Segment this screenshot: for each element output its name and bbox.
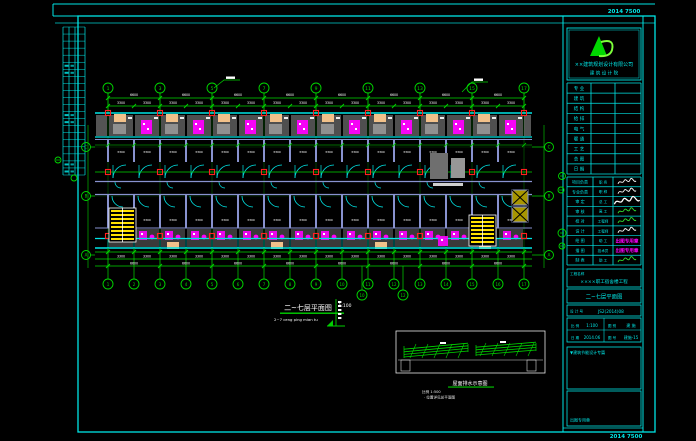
svg-text:绘 图: 绘 图: [575, 237, 584, 243]
svg-text:17: 17: [521, 86, 527, 92]
svg-text:13: 13: [417, 282, 423, 287]
svg-text:13: 13: [417, 86, 423, 92]
title-block: ××建筑规划设计有限公司 建 筑 设 计 院 专 业建 筑结 构给 排电 气暖 …: [558, 28, 641, 426]
svg-text:9: 9: [315, 282, 318, 287]
svg-text:3300: 3300: [455, 218, 463, 222]
svg-text:6600: 6600: [442, 262, 450, 266]
svg-text:2014.06: 2014.06: [584, 335, 601, 340]
svg-text:3300: 3300: [169, 101, 177, 105]
svg-text:3300: 3300: [377, 218, 385, 222]
svg-text:5: 5: [211, 86, 214, 92]
svg-text:16: 16: [495, 282, 501, 287]
svg-text:3300: 3300: [481, 150, 489, 154]
svg-text:3300: 3300: [299, 101, 307, 105]
svg-text:3300: 3300: [117, 150, 125, 154]
svg-text:总 工: 总 工: [599, 199, 608, 204]
sign-table: 专 业建 筑结 构给 排电 气暖 通工 艺总 图日 期: [567, 83, 641, 174]
svg-text:12: 12: [400, 293, 406, 298]
svg-text:3300: 3300: [325, 255, 333, 259]
svg-text:工程师: 工程师: [598, 219, 609, 224]
svg-text:A: A: [548, 253, 551, 258]
svg-text:3300: 3300: [221, 255, 229, 259]
svg-text:1: 1: [107, 282, 110, 287]
svg-text:总 图: 总 图: [574, 156, 585, 163]
svg-text:6600: 6600: [286, 262, 294, 266]
svg-text:6600: 6600: [442, 93, 450, 97]
svg-text:6: 6: [237, 282, 240, 287]
dimension-lines-bottom: 3300330033003300330033003300330033003300…: [95, 248, 532, 279]
svg-text:6600: 6600: [494, 262, 502, 266]
svg-text:3300: 3300: [351, 255, 359, 259]
svg-text:3300: 3300: [221, 150, 229, 154]
svg-text:B: B: [85, 194, 88, 199]
svg-text:3300: 3300: [429, 255, 437, 259]
elevator-shafts: [512, 190, 528, 222]
svg-text:3300: 3300: [117, 255, 125, 259]
floor-plan: 6600660066006600660066006600660033003300…: [82, 77, 554, 301]
svg-text:14: 14: [443, 282, 449, 287]
svg-text:3300: 3300: [299, 218, 307, 222]
svg-text:C: C: [548, 145, 551, 150]
svg-text:建 筑 设 计 院: 建 筑 设 计 院: [590, 70, 619, 77]
svg-text:7: 7: [263, 282, 266, 287]
svg-text:出图专用章: 出图专用章: [570, 417, 590, 423]
svg-text:6600: 6600: [338, 93, 346, 97]
svg-text:图 号: 图 号: [608, 335, 617, 340]
svg-text:6600: 6600: [234, 93, 242, 97]
svg-text:3: 3: [159, 86, 162, 92]
svg-text:3300: 3300: [507, 150, 515, 154]
svg-text:3300: 3300: [247, 150, 255, 154]
svg-text:电 气: 电 气: [574, 125, 585, 132]
svg-text:17: 17: [521, 282, 527, 287]
sheet-code-bottom: 2014 7500: [610, 434, 643, 440]
svg-text:工程名称: 工程名称: [570, 271, 585, 276]
svg-text:9: 9: [315, 86, 318, 92]
svg-text:3300: 3300: [195, 218, 203, 222]
svg-text:描 图: 描 图: [575, 247, 584, 253]
key-plan-sketch: [404, 341, 536, 358]
staff-table: 项目负责职 务专业负责职 称审 定总 工审 核高 工校 对工程师设 计工程师绘 …: [567, 177, 641, 265]
svg-text:10: 10: [339, 282, 345, 287]
svg-text:3300: 3300: [403, 101, 411, 105]
svg-text:3300: 3300: [377, 101, 385, 105]
svg-text:3300: 3300: [455, 150, 463, 154]
stamp-area-1: ▼建筑节能设计专篇: [567, 347, 641, 389]
svg-text:3300: 3300: [481, 255, 489, 259]
key-plan-inset: 屋面排水示意图 比例 1:500 · 位置详见总平面图: [396, 331, 545, 400]
svg-text:3300: 3300: [247, 255, 255, 259]
svg-text:3300: 3300: [403, 218, 411, 222]
svg-text:12: 12: [391, 282, 397, 287]
svg-text:专业负责: 专业负责: [572, 188, 588, 194]
svg-text:项目负责: 项目负责: [572, 178, 588, 184]
svg-text:3300: 3300: [143, 150, 151, 154]
svg-text:6600: 6600: [390, 93, 398, 97]
svg-text:建 筑: 建 筑: [574, 95, 585, 102]
svg-text:3300: 3300: [117, 101, 125, 105]
svg-text:给 排: 给 排: [574, 115, 585, 122]
margin-sign-strip: [55, 27, 85, 181]
svg-text:A: A: [85, 253, 88, 258]
svg-text:15: 15: [469, 86, 475, 92]
svg-text:结 构: 结 构: [574, 105, 585, 112]
svg-text:3300: 3300: [429, 218, 437, 222]
svg-text:▼建筑节能设计专篇: ▼建筑节能设计专篇: [570, 349, 605, 355]
svg-text:B: B: [548, 194, 551, 199]
svg-text:3300: 3300: [507, 255, 515, 259]
building: 3300330033003300330033003300330033003300…: [95, 111, 532, 250]
svg-text:3300: 3300: [143, 101, 151, 105]
svg-text:11: 11: [365, 86, 371, 92]
svg-text:15: 15: [469, 282, 475, 287]
svg-text:3300: 3300: [169, 218, 177, 222]
svg-text:出图专用章: 出图专用章: [616, 237, 639, 244]
svg-text:3300: 3300: [169, 150, 177, 154]
svg-text:3300: 3300: [325, 101, 333, 105]
svg-text:技术员: 技术员: [598, 248, 609, 253]
svg-text:助 工: 助 工: [599, 238, 608, 243]
svg-text:3300: 3300: [351, 101, 359, 105]
svg-text:11: 11: [365, 282, 371, 287]
svg-text:3300: 3300: [221, 218, 229, 222]
svg-text:6600: 6600: [182, 93, 190, 97]
svg-text:6600: 6600: [338, 262, 346, 266]
drawing-name: 二~七层平面图: [586, 293, 623, 301]
svg-text:××建筑规划设计有限公司: ××建筑规划设计有限公司: [575, 61, 633, 68]
svg-text:3300: 3300: [143, 218, 151, 222]
svg-text:10: 10: [359, 293, 365, 298]
svg-text:3300: 3300: [377, 150, 385, 154]
svg-text:3300: 3300: [455, 101, 463, 105]
svg-text:比例 1:500: 比例 1:500: [422, 389, 441, 394]
svg-text:3300: 3300: [195, 255, 203, 259]
company-logo: ××建筑规划设计有限公司 建 筑 设 计 院: [567, 28, 641, 80]
svg-text:出图专用章: 出图专用章: [616, 247, 639, 254]
svg-text:高 工: 高 工: [599, 209, 608, 214]
grid-bubbles-top: 1357911131517: [103, 83, 529, 93]
svg-text:3300: 3300: [299, 255, 307, 259]
svg-text:3: 3: [159, 282, 162, 287]
svg-text:设 计: 设 计: [575, 227, 584, 233]
logo-icon: [590, 36, 607, 56]
svg-text:6600: 6600: [234, 262, 242, 266]
cad-viewer-page: 2014 7500 2014 7500 66006600660066006600…: [0, 0, 696, 441]
svg-text:JS2(2014)08: JS2(2014)08: [597, 309, 624, 314]
svg-text:3300: 3300: [403, 255, 411, 259]
svg-text:职 务: 职 务: [599, 179, 608, 184]
svg-text:工 艺: 工 艺: [574, 147, 585, 153]
svg-text:1: 1: [107, 86, 110, 92]
svg-text:工程师: 工程师: [598, 228, 609, 233]
svg-text:3300: 3300: [169, 255, 177, 259]
svg-text:1:100: 1:100: [586, 323, 598, 328]
review-circle-marks: [558, 173, 566, 250]
svg-text:C: C: [85, 145, 88, 150]
svg-text:校 对: 校 对: [575, 218, 584, 224]
svg-text:日 期: 日 期: [574, 167, 585, 173]
svg-text:6600: 6600: [494, 93, 502, 97]
svg-text:二~七层平面图: 二~七层平面图: [284, 303, 332, 312]
svg-text:设 计 号: 设 计 号: [570, 309, 583, 314]
svg-text:7: 7: [263, 86, 266, 92]
svg-text:6600: 6600: [130, 93, 138, 97]
svg-text:3300: 3300: [273, 101, 281, 105]
svg-text:3300: 3300: [273, 255, 281, 259]
svg-text:屋面排水示意图: 屋面排水示意图: [452, 380, 487, 387]
svg-text:审 核: 审 核: [575, 208, 584, 214]
svg-text:3300: 3300: [351, 150, 359, 154]
svg-text:日 期: 日 期: [571, 335, 580, 340]
svg-text:审 定: 审 定: [575, 198, 584, 204]
svg-text:· 位置详见总平面图: · 位置详见总平面图: [424, 395, 455, 400]
svg-text:3300: 3300: [299, 150, 307, 154]
dimension-lines-top: 6600660066006600660066006600660033003300…: [106, 77, 526, 114]
svg-text:3300: 3300: [403, 150, 411, 154]
svg-text:建 施: 建 施: [626, 322, 635, 328]
svg-text:3300: 3300: [455, 255, 463, 259]
svg-text:制 表: 制 表: [575, 257, 584, 263]
svg-text:助 工: 助 工: [599, 258, 608, 263]
project-info: 工程名称 ××××职工宿舍楼工程 二~七层平面图 设 计 号 JS2(2014)…: [567, 269, 641, 342]
svg-text:暖 通: 暖 通: [574, 135, 585, 142]
svg-text:3300: 3300: [351, 218, 359, 222]
svg-text:3300: 3300: [195, 101, 203, 105]
svg-text:5: 5: [211, 282, 214, 287]
svg-text:3300: 3300: [481, 101, 489, 105]
svg-text:3300: 3300: [195, 150, 203, 154]
svg-text:3300: 3300: [247, 101, 255, 105]
svg-text:6600: 6600: [182, 262, 190, 266]
svg-text:职 称: 职 称: [599, 189, 608, 194]
svg-text:2~7 ceng ping mian tu: 2~7 ceng ping mian tu: [274, 317, 318, 322]
svg-text:专 业: 专 业: [574, 85, 585, 92]
svg-text:6600: 6600: [286, 93, 294, 97]
svg-text:2: 2: [133, 282, 136, 287]
svg-text:3300: 3300: [273, 150, 281, 154]
svg-text:3300: 3300: [325, 150, 333, 154]
sheet-code-top: 2014 7500: [608, 9, 641, 15]
svg-text:3300: 3300: [143, 255, 151, 259]
svg-text:图 别: 图 别: [608, 323, 617, 328]
stamp-area-2: 出图专用章: [567, 391, 641, 426]
svg-text:××××职工宿舍楼工程: ××××职工宿舍楼工程: [580, 278, 628, 285]
svg-text:3300: 3300: [247, 218, 255, 222]
stair-right: [469, 215, 496, 246]
svg-text:3300: 3300: [221, 101, 229, 105]
cad-sheet-canvas[interactable]: 2014 7500 2014 7500 66006600660066006600…: [0, 0, 696, 441]
svg-text:6600: 6600: [390, 262, 398, 266]
svg-text:3300: 3300: [507, 101, 515, 105]
svg-text:3300: 3300: [429, 101, 437, 105]
svg-text:3300: 3300: [325, 218, 333, 222]
svg-text:4: 4: [185, 282, 188, 287]
svg-text:3300: 3300: [377, 255, 385, 259]
svg-text:8: 8: [289, 282, 292, 287]
svg-text:建施-15: 建施-15: [624, 334, 639, 340]
stair-left: [109, 208, 136, 242]
svg-text:3300: 3300: [273, 218, 281, 222]
svg-text:6600: 6600: [130, 262, 138, 266]
svg-text:比 例: 比 例: [571, 323, 580, 328]
